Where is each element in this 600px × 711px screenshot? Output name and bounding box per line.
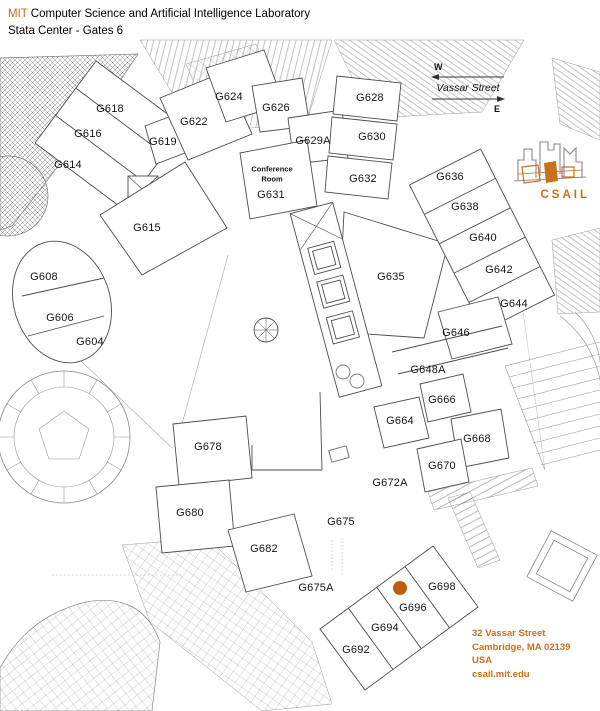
room-label-g672a: G672A: [372, 477, 407, 489]
room-label-g626: G626: [262, 102, 290, 114]
title-line2: Stata Center - Gates 6: [8, 23, 310, 40]
csail-logo: CSAIL: [510, 136, 592, 201]
room-label-g635: G635: [377, 271, 405, 283]
room-label-g682: G682: [250, 543, 278, 555]
room-label-g646: G646: [442, 327, 470, 339]
room-label-g640: G640: [469, 232, 497, 244]
room-label-g638: G638: [451, 201, 479, 213]
address-url: csail.mit.edu: [472, 668, 570, 682]
csail-wordmark: CSAIL: [510, 189, 592, 201]
room-label-g629a: G629A: [295, 135, 330, 147]
room-label-g618: G618: [96, 103, 124, 115]
location-marker-dot: [393, 581, 407, 595]
room-label-g698: G698: [428, 581, 456, 593]
room-label-g624: G624: [215, 91, 243, 103]
room-label-g675: G675: [327, 516, 355, 528]
room-label-g692: G692: [342, 644, 370, 656]
room-label-g670: G670: [428, 460, 456, 472]
address-block: 32 Vassar Street Cambridge, MA 02139 USA…: [472, 627, 570, 681]
address-line: USA: [472, 654, 570, 668]
room-label-g632: G632: [349, 173, 377, 185]
area-label-room: Room: [261, 175, 282, 184]
room-label-g636: G636: [436, 171, 464, 183]
room-label-g614: G614: [54, 159, 82, 171]
room-label-g668: G668: [463, 433, 491, 445]
map-title: MIT Computer Science and Artificial Inte…: [8, 6, 310, 40]
room-label-g608: G608: [30, 271, 58, 283]
room-label-g606: G606: [46, 312, 74, 324]
room-label-g631: G631: [257, 189, 285, 201]
area-label-conference: Conference: [251, 165, 292, 174]
room-label-g696: G696: [399, 602, 427, 614]
title-line1: MIT Computer Science and Artificial Inte…: [8, 6, 310, 23]
floor-plan-labels: G604G606G608G614G615G616G618G619G622G624…: [0, 0, 600, 711]
address-line: Cambridge, MA 02139: [472, 641, 570, 655]
csail-logo-icon: [510, 136, 592, 186]
room-label-g616: G616: [74, 128, 102, 140]
address-line: 32 Vassar Street: [472, 627, 570, 641]
east-arrow-icon: [430, 95, 506, 103]
room-label-g664: G664: [386, 415, 414, 427]
title-text: Computer Science and Artificial Intellig…: [28, 8, 311, 20]
room-label-g666: G666: [428, 394, 456, 406]
compass-west-label: W: [428, 62, 508, 72]
brand-mit: MIT: [8, 8, 28, 20]
room-label-g622: G622: [180, 116, 208, 128]
room-label-g644: G644: [500, 298, 528, 310]
room-label-g694: G694: [371, 622, 399, 634]
street-label: Vassar Street: [428, 82, 508, 94]
room-label-g628: G628: [356, 92, 384, 104]
room-label-g680: G680: [176, 507, 204, 519]
room-label-g604: G604: [76, 336, 104, 348]
compass: W Vassar Street E: [428, 62, 508, 114]
room-label-g615: G615: [133, 222, 161, 234]
room-label-g619: G619: [149, 136, 177, 148]
room-label-g678: G678: [194, 441, 222, 453]
room-label-g648a: G648A: [410, 364, 445, 376]
west-arrow-icon: [430, 73, 506, 81]
room-label-g675a: G675A: [298, 582, 333, 594]
room-label-g642: G642: [485, 264, 513, 276]
floor-plan-map: G604G606G608G614G615G616G618G619G622G624…: [0, 0, 600, 711]
room-label-g630: G630: [358, 131, 386, 143]
compass-east-label: E: [428, 104, 508, 114]
